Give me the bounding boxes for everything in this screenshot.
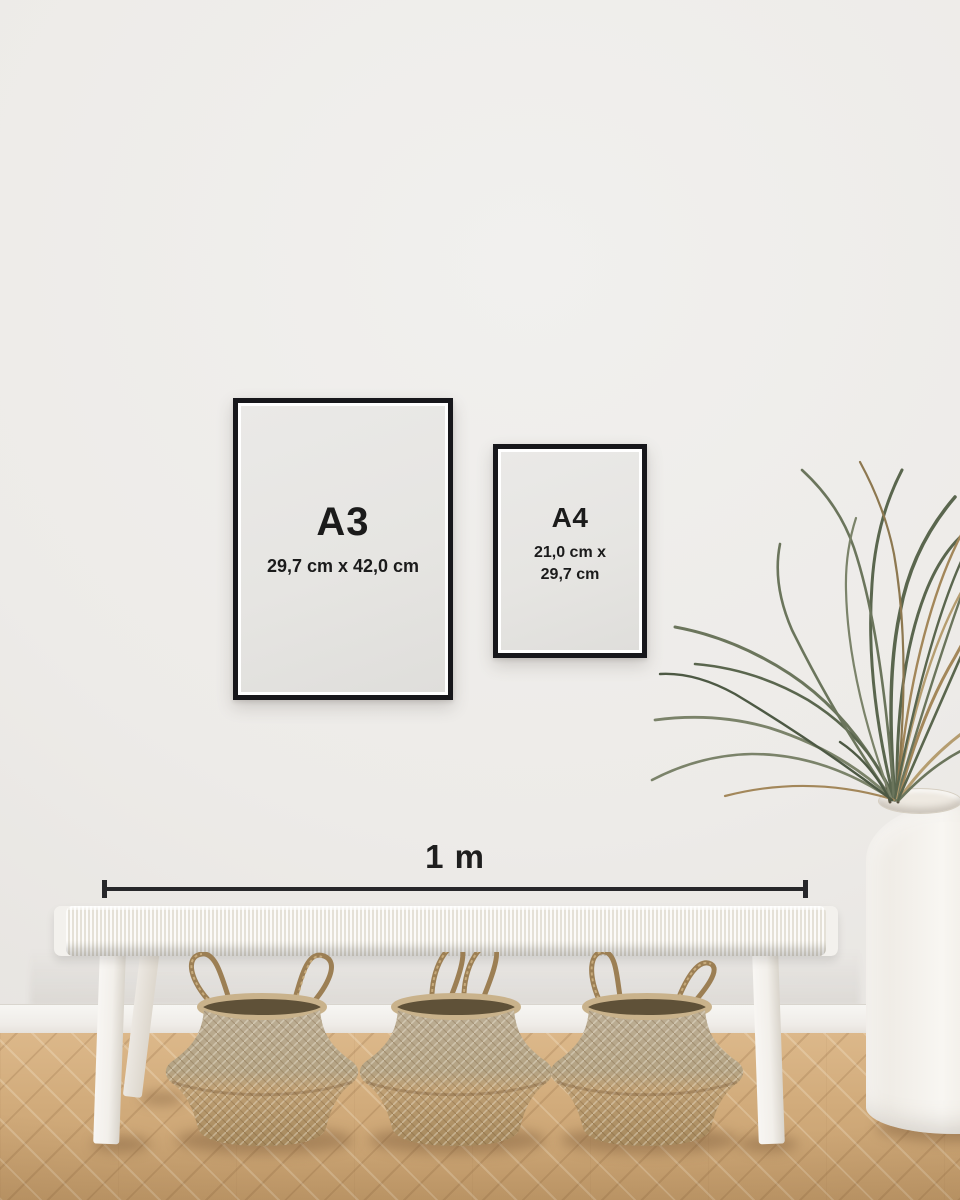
a4-size-label: A4 [552, 504, 589, 532]
a4-frame: A4 21,0 cm x 29,7 cm [493, 444, 647, 658]
a3-paper: A3 29,7 cm x 42,0 cm [241, 406, 445, 692]
ruler-label: 1 m [102, 838, 808, 876]
baskets [150, 952, 770, 1162]
ruler-tick-left [102, 880, 107, 898]
a4-paper: A4 21,0 cm x 29,7 cm [501, 452, 639, 650]
a4-dims-line2: 29,7 cm [534, 564, 606, 586]
a3-size-label: A3 [316, 502, 369, 542]
basket [166, 954, 358, 1146]
a3-size-dimensions: 29,7 cm x 42,0 cm [267, 556, 419, 577]
size-ruler [102, 887, 808, 891]
a3-frame: A3 29,7 cm x 42,0 cm [233, 398, 453, 700]
basket [551, 952, 743, 1146]
ruler-tick-right [803, 880, 808, 898]
palm-plant-icon [640, 322, 960, 822]
vase [866, 800, 960, 1134]
bench [54, 906, 838, 956]
a4-size-dimensions: 21,0 cm x 29,7 cm [534, 542, 606, 587]
a4-dims-line1: 21,0 cm x [534, 542, 606, 564]
basket [360, 952, 552, 1146]
